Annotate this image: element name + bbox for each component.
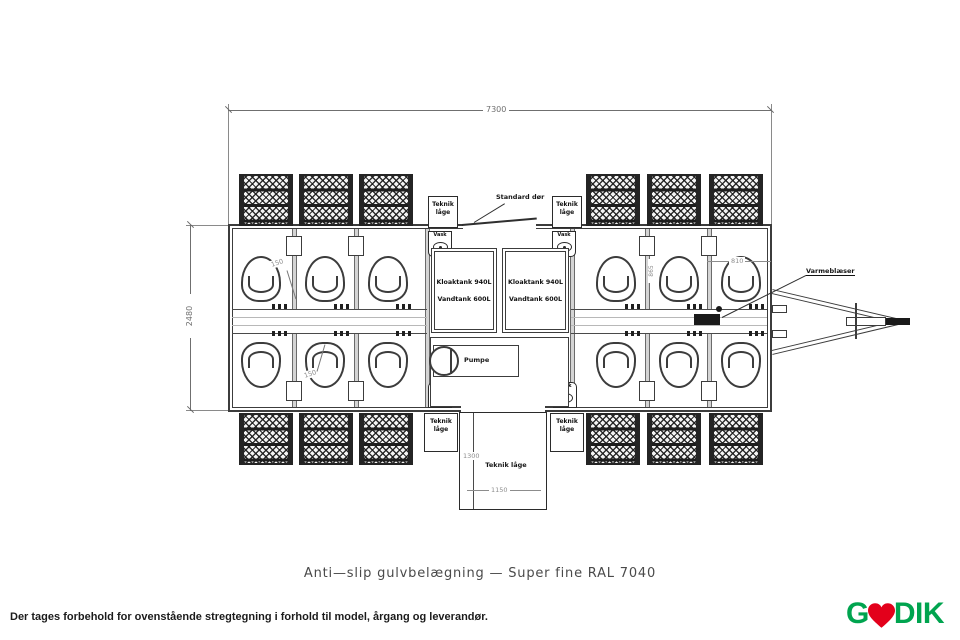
stall-door-threshold (687, 304, 703, 309)
stall-door-threshold (272, 331, 288, 336)
compartment-inner-wall (473, 413, 474, 509)
toilet (596, 256, 636, 302)
toilet (368, 256, 408, 302)
corridor-wall-line (571, 333, 767, 334)
door-grate-panel (647, 413, 701, 465)
heater-label: Varmeblæser (806, 267, 855, 276)
logo-text-g: G (846, 597, 869, 631)
heater-dot (716, 306, 722, 312)
teknik-hatch-label: Teknik låge (429, 197, 457, 217)
coupler-body (846, 317, 886, 326)
stall-door-threshold (687, 331, 703, 336)
teknik-hatch-box: Teknik låge (552, 196, 582, 228)
heater-unit (694, 314, 720, 325)
cistern-box (639, 236, 655, 256)
teknik-hatch-box: Teknik låge (550, 413, 584, 452)
corridor-floor-line (232, 325, 427, 326)
water-tank-label: Vandtank 600L (509, 296, 562, 303)
door-grate-panel (359, 174, 413, 226)
stall-door-threshold (625, 304, 641, 309)
teknik-hatch-label: Teknik låge (551, 414, 583, 434)
toilet (305, 256, 345, 302)
stall-door-threshold (334, 331, 350, 336)
dimension-2480: 2480 (185, 294, 195, 338)
sewage-tank-label: Kloaktank 940L (508, 279, 563, 286)
stall-door-threshold (396, 331, 412, 336)
stall-door-threshold (749, 304, 765, 309)
cistern-box (286, 381, 302, 401)
pump-icon (429, 346, 459, 376)
cistern-box (701, 236, 717, 256)
door-grate-panel (586, 413, 640, 465)
door-grate-panel (239, 413, 293, 465)
dimension-7300: 7300 (483, 105, 509, 115)
teknik-hatch-box: Teknik låge (428, 196, 458, 228)
sewage-tank-label: Kloaktank 940L (436, 279, 491, 286)
stall-door-threshold (396, 304, 412, 309)
door-grate-panel (586, 174, 640, 226)
dimension-810: 810 (729, 257, 745, 265)
tank-room: Kloaktank 940L Vandtank 600L (431, 248, 497, 333)
door-grate-panel (709, 174, 763, 226)
tank-room: Kloaktank 940L Vandtank 600L (502, 248, 569, 333)
corridor-floor-line (571, 317, 767, 318)
teknik-hatch-label: Teknik låge (425, 414, 457, 434)
godik-logo: G DIK (846, 597, 944, 631)
standard-door-label: Standard dør (496, 193, 544, 201)
wall-step (772, 330, 787, 338)
sink-label: Vask (553, 232, 575, 239)
coupler-tip (886, 318, 910, 325)
door-grate-panel (299, 413, 353, 465)
stall-door-threshold (625, 331, 641, 336)
corridor-floor-line (232, 317, 427, 318)
water-tank-label: Vandtank 600L (437, 296, 490, 303)
door-grate-panel (647, 174, 701, 226)
extension-line (228, 104, 229, 224)
sink-label: Vask (429, 232, 451, 239)
corridor-floor-line (571, 325, 767, 326)
door-grate-panel (709, 413, 763, 465)
dimension-865: 865 (648, 259, 656, 283)
cistern-box (348, 381, 364, 401)
footer-disclaimer: Der tages forbehold for ovenstående stre… (10, 611, 488, 623)
heart-icon (868, 603, 895, 628)
drawing-title: Anti—slip gulvbelægning — Super fine RAL… (0, 566, 960, 581)
wall-step (772, 305, 787, 313)
logo-text-dik: DIK (894, 597, 944, 631)
teknik-hatch-label: Teknik låge (553, 197, 581, 217)
teknik-hatch-box: Teknik låge (424, 413, 458, 452)
door-grate-panel (359, 413, 413, 465)
toilet (659, 256, 699, 302)
corridor-wall-line (232, 309, 427, 310)
door-grate-panel (239, 174, 293, 226)
dimension-1300: 1300 (461, 452, 482, 460)
tank-room-inner: Kloaktank 940L Vandtank 600L (505, 251, 566, 330)
cistern-box (286, 236, 302, 256)
stall-door-threshold (749, 331, 765, 336)
floor-plan-drawing: 7300 2480 Teknik låge Teknik låge Standa… (0, 0, 960, 640)
cistern-box (701, 381, 717, 401)
door-grate-panel (299, 174, 353, 226)
extension-line (771, 104, 772, 224)
cistern-box (348, 236, 364, 256)
coupler-pin (855, 303, 857, 339)
teknik-compartment-label: Teknik låge (484, 461, 528, 470)
cistern-box (639, 381, 655, 401)
stall-door-threshold (272, 304, 288, 309)
tank-room-inner: Kloaktank 940L Vandtank 600L (434, 251, 494, 330)
pump-label: Pumpe (464, 356, 489, 364)
stall-door-threshold (334, 304, 350, 309)
dimension-1150: 1150 (489, 486, 510, 494)
